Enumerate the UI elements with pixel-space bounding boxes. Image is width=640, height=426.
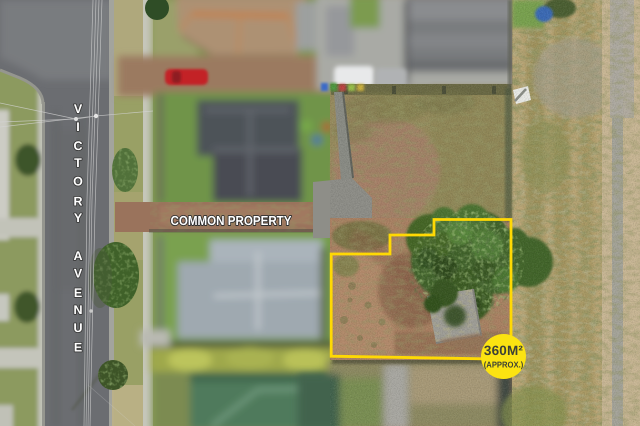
svg-text:U: U <box>73 321 82 335</box>
svg-text:N: N <box>73 303 82 317</box>
svg-text:A: A <box>73 249 82 263</box>
svg-text:I: I <box>76 120 79 134</box>
svg-text:O: O <box>73 175 83 189</box>
svg-text:E: E <box>74 341 82 355</box>
svg-text:360M²: 360M² <box>484 343 524 358</box>
svg-text:E: E <box>74 286 82 300</box>
svg-text:(APPROX.): (APPROX.) <box>484 360 524 370</box>
svg-text:V: V <box>74 267 83 281</box>
svg-text:COMMON PROPERTY: COMMON PROPERTY <box>171 213 292 228</box>
svg-text:T: T <box>74 156 82 170</box>
svg-text:Y: Y <box>74 211 83 225</box>
svg-text:R: R <box>73 195 82 209</box>
svg-text:C: C <box>73 139 82 153</box>
svg-text:V: V <box>74 102 83 116</box>
